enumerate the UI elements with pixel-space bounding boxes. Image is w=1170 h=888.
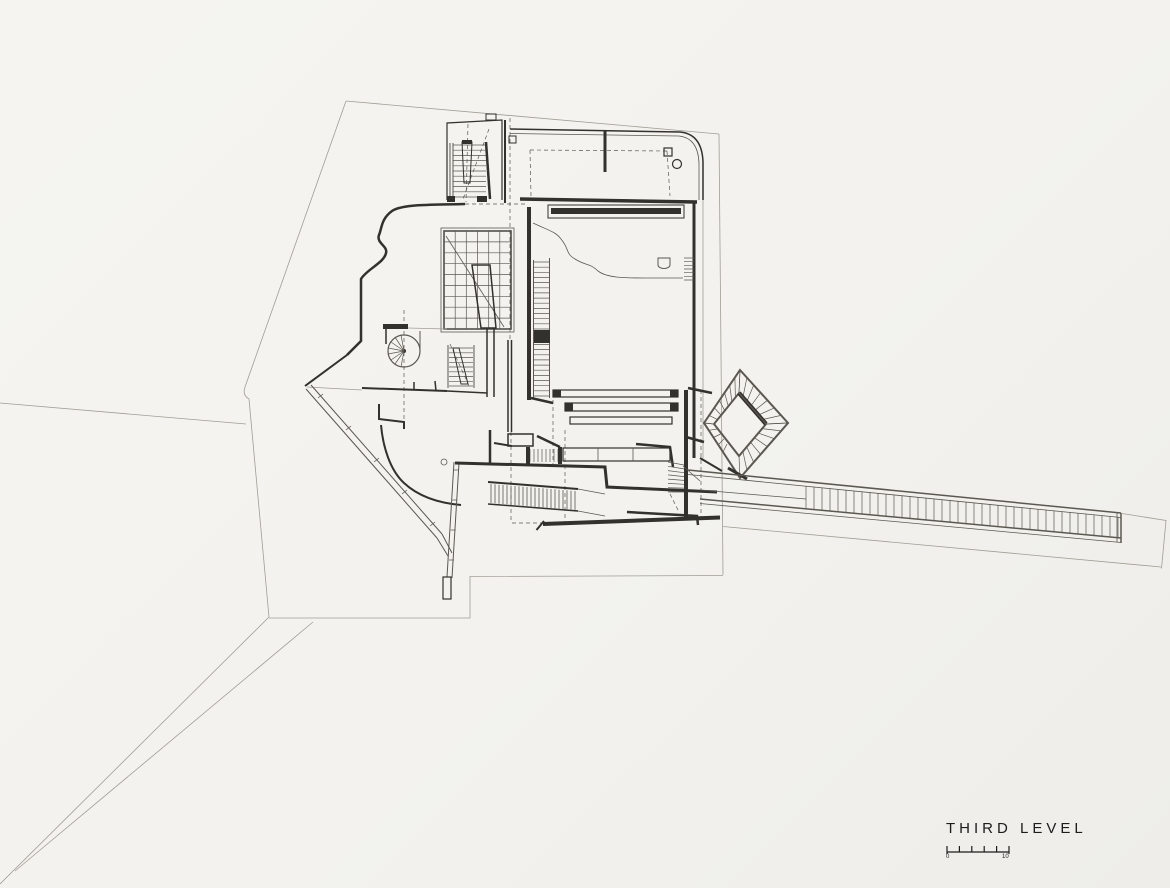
west-walls: [305, 204, 487, 505]
outdoor-stair: [488, 482, 605, 516]
dashed-guide-lines: [404, 118, 701, 523]
southwest-ramps: [306, 385, 459, 599]
scale-bar: 0 10: [946, 844, 1026, 862]
scale-start-label: 0: [946, 854, 949, 860]
entry-bridge: [683, 466, 1121, 543]
scale-bar-ticks: [946, 844, 1026, 862]
living-room: [529, 207, 683, 461]
scale-end-label: 10: [1002, 854, 1009, 860]
plan-title: THIRD LEVEL: [946, 820, 1146, 837]
spiral-stair: [383, 324, 420, 367]
floor-plan-drawing: [0, 0, 1170, 888]
mid-stair: [448, 345, 474, 388]
clerestory-band: [548, 205, 684, 218]
plan-label-block: THIRD LEVEL 0 10: [946, 820, 1146, 862]
deck-edge: [537, 518, 721, 531]
floor-plan-svg: [0, 0, 1170, 888]
drafting-sheet: { "drawing": { "title": "THIRD LEVEL", "…: [0, 0, 1170, 888]
northwest-stair-block: [447, 114, 505, 203]
